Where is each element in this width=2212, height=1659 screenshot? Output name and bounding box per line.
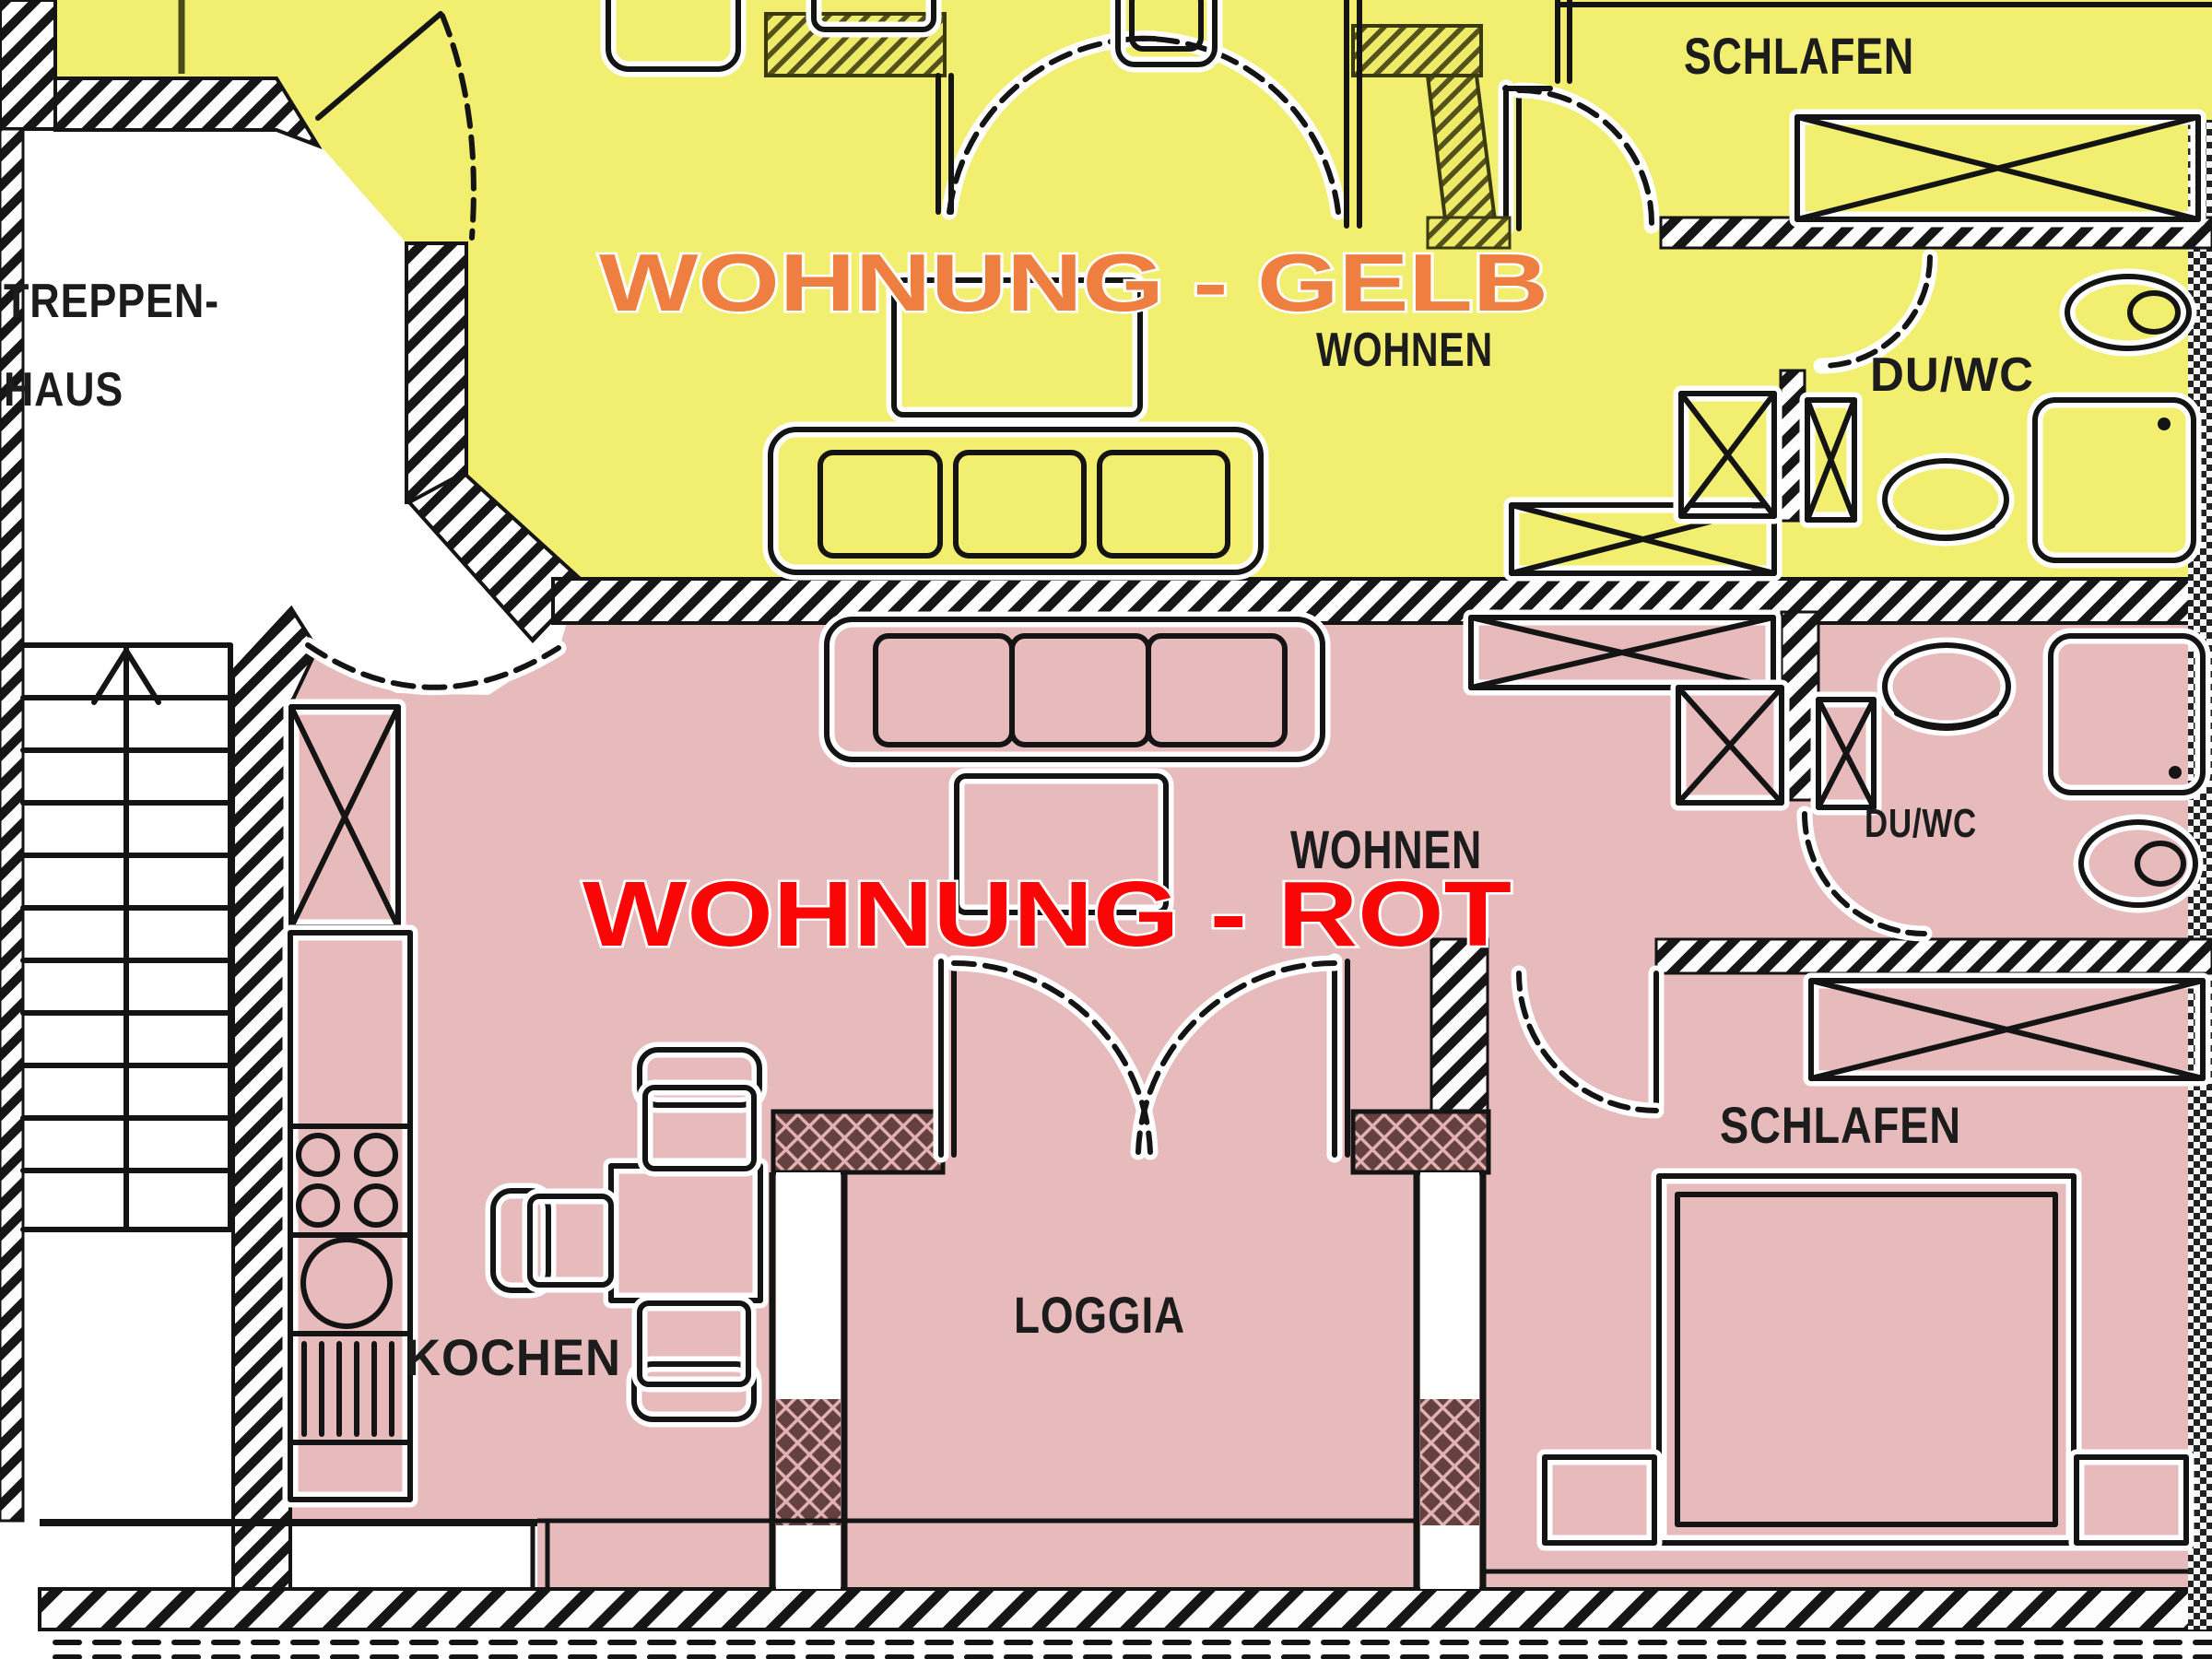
- svg-text:SCHLAFEN: SCHLAFEN: [1720, 1096, 1961, 1154]
- svg-text:HAUS: HAUS: [4, 363, 124, 417]
- svg-text:WOHNEN: WOHNEN: [1290, 820, 1482, 880]
- svg-text:DU/WC: DU/WC: [1870, 348, 2034, 402]
- svg-text:KOCHEN: KOCHEN: [406, 1328, 621, 1386]
- svg-text:SCHLAFEN: SCHLAFEN: [1684, 27, 1914, 85]
- svg-text:DU/WC: DU/WC: [1865, 801, 1977, 846]
- svg-text:LOGGIA: LOGGIA: [1014, 1286, 1185, 1344]
- svg-text:WOHNEN: WOHNEN: [1316, 324, 1493, 377]
- svg-text:TREPPEN-: TREPPEN-: [4, 275, 219, 328]
- svg-text:WOHNUNG - GELB: WOHNUNG - GELB: [599, 237, 1548, 328]
